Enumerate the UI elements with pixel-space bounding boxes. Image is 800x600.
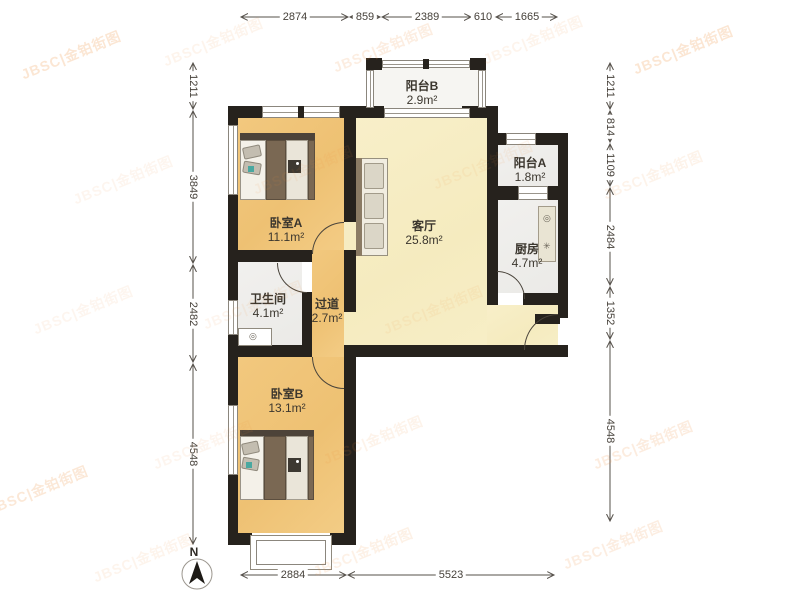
- floor-plan: ◎ ✳ ◎ 阳台B2.9m² 卧室A11.1m² 客厅25.8m² 阳台A1.8…: [0, 0, 800, 600]
- north-label: N: [190, 545, 199, 559]
- dim-top-1: 2874: [280, 11, 310, 23]
- dim-right-6: 4548: [604, 416, 616, 446]
- dim-bottom-2: 5523: [436, 569, 466, 581]
- dimension-lines: [0, 0, 800, 600]
- dim-left-2: 3849: [187, 172, 199, 202]
- dim-top-3: 2389: [412, 11, 442, 23]
- dim-right-4: 2484: [604, 222, 616, 252]
- dim-bottom-1: 2884: [278, 569, 308, 581]
- dim-right-2: 814: [604, 115, 616, 139]
- dim-top-5: 1665: [512, 11, 542, 23]
- dim-top-2: 859: [353, 11, 377, 23]
- dim-left-1: 1211: [187, 71, 199, 101]
- dim-right-1: 1211: [604, 71, 616, 101]
- dim-left-3: 2482: [187, 299, 199, 329]
- dim-right-5: 1352: [604, 298, 616, 328]
- north-compass: [182, 559, 212, 589]
- dim-right-3: 1109: [604, 150, 616, 180]
- dim-top-4: 610: [471, 11, 495, 23]
- dim-left-4: 4548: [187, 439, 199, 469]
